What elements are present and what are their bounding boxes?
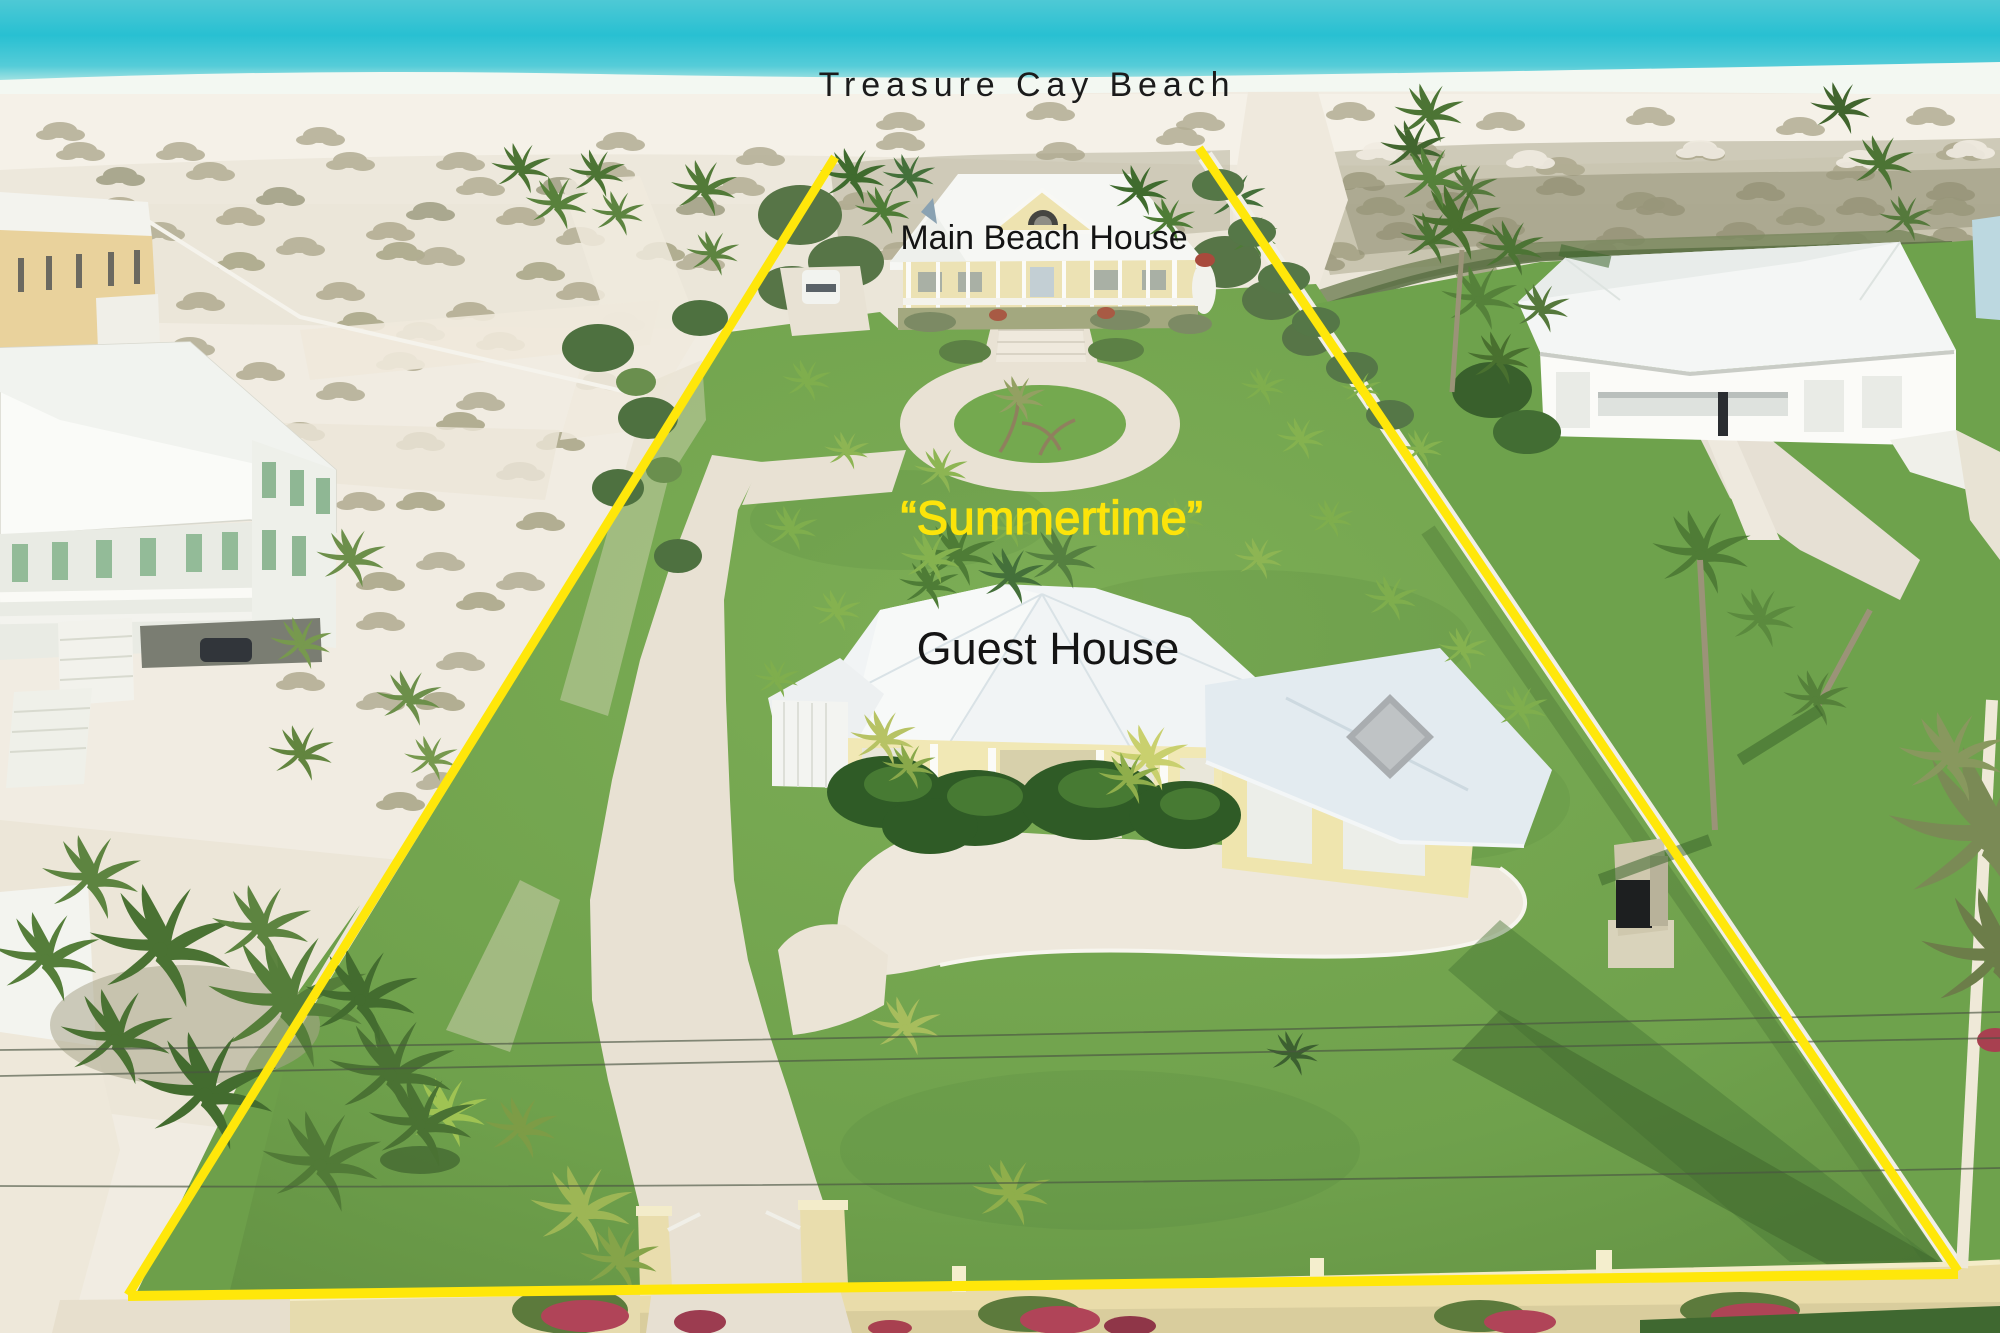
- svg-text:Guest House: Guest House: [917, 623, 1180, 674]
- svg-text:“Summertime”: “Summertime”: [901, 491, 1203, 544]
- svg-text:Main Beach House: Main Beach House: [900, 219, 1187, 257]
- svg-text:Treasure Cay Beach: Treasure Cay Beach: [819, 66, 1236, 104]
